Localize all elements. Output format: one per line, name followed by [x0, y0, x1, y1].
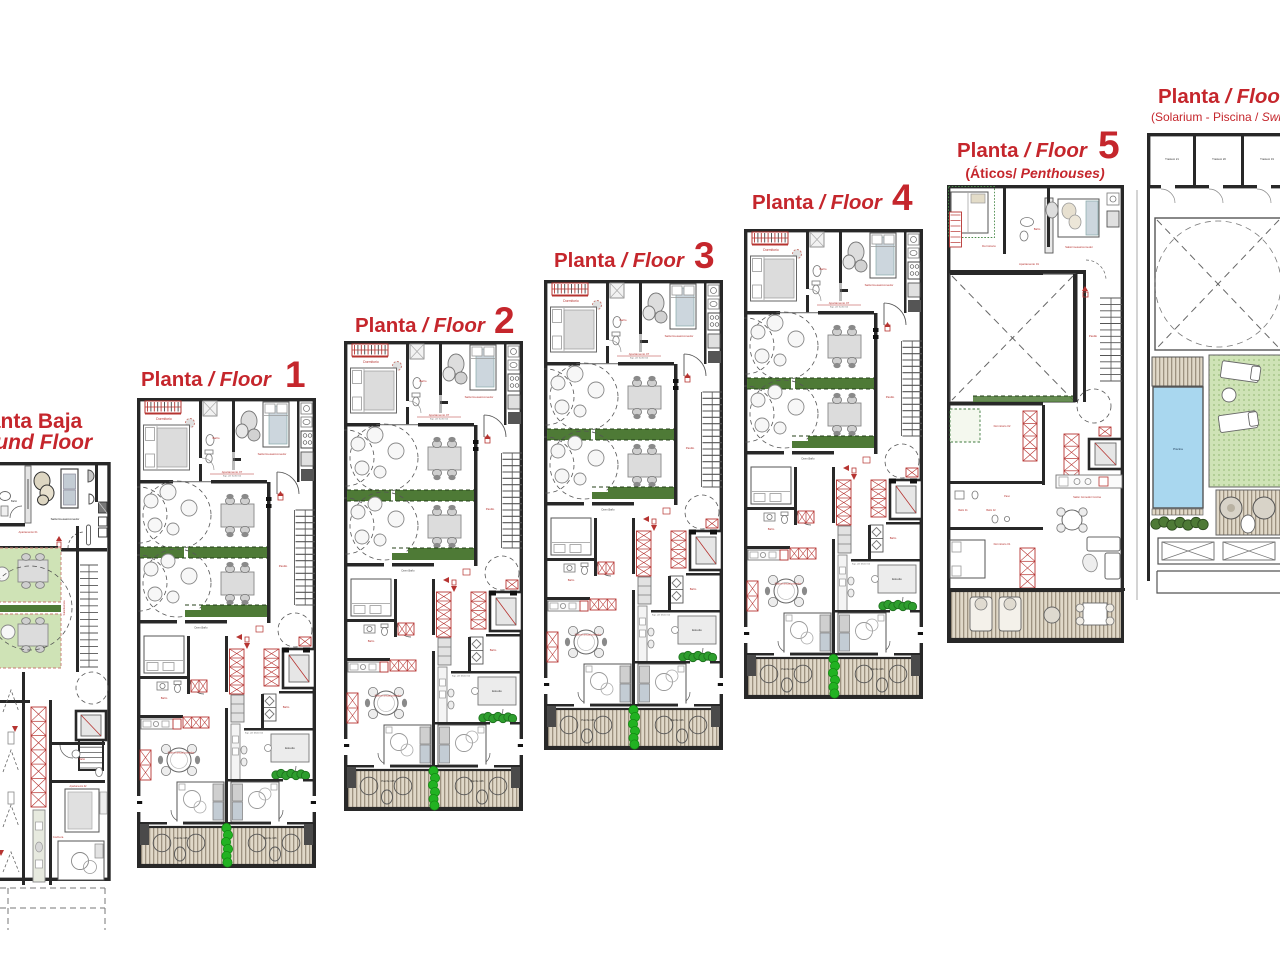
svg-text:4: 4 [892, 177, 913, 218]
svg-text:(Áticos/ Penthouses): (Áticos/ Penthouses) [965, 165, 1105, 181]
svg-text:Trastero 20: Trastero 20 [1212, 157, 1226, 161]
svg-text:Salón/mesas/comedor: Salón/mesas/comedor [51, 517, 80, 521]
svg-text:5: 5 [1098, 124, 1120, 167]
svg-text:Baño 02: Baño 02 [986, 509, 996, 512]
svg-text:Trastero 21: Trastero 21 [1165, 157, 1179, 161]
svg-text:Baño: Baño [79, 757, 86, 761]
svg-text:Dormitorio: Dormitorio [982, 244, 996, 248]
svg-text:Piscina: Piscina [1173, 447, 1183, 451]
svg-text:Planta / Floor: Planta / Floor [554, 249, 685, 272]
svg-text:Planta / Floor: Planta / Floor [355, 314, 486, 337]
svg-text:Salón/terraza: Salón/terraza [63, 600, 66, 615]
svg-text:Planta / Floor: Planta / Floor [957, 139, 1088, 162]
svg-text:Apartamento 01: Apartamento 01 [18, 530, 38, 534]
svg-text:1: 1 [285, 354, 306, 395]
svg-text:Planta / Floor: Planta / Floor [752, 191, 883, 214]
svg-text:Paso: Paso [1004, 495, 1010, 498]
svg-text:Pasillo: Pasillo [1089, 334, 1098, 338]
svg-text:Baño: Baño [1034, 227, 1041, 231]
svg-text:Salón/mesas/comedor: Salón/mesas/comedor [1065, 245, 1093, 249]
svg-text:Dormitorio 02: Dormitorio 02 [994, 424, 1011, 428]
svg-text:Ground Floor: Ground Floor [0, 431, 94, 454]
svg-text:Trastero 19: Trastero 19 [1260, 157, 1274, 161]
svg-text:Apartamento 02: Apartamento 02 [69, 785, 87, 788]
svg-text:3: 3 [694, 235, 715, 276]
svg-text:2: 2 [494, 300, 515, 341]
svg-text:Planta / Floor: Planta / Floor [1158, 85, 1280, 108]
svg-text:Baño: Baño [11, 499, 18, 503]
svg-text:Baño 01: Baño 01 [958, 509, 968, 512]
svg-text:Salón Comedor Cocina: Salón Comedor Cocina [1073, 495, 1101, 499]
svg-text:Planta Baja: Planta Baja [0, 410, 83, 433]
svg-text:Cochera: Cochera [53, 835, 64, 839]
svg-text:Apartamento 01: Apartamento 01 [1019, 262, 1039, 266]
svg-text:Dormitorio 01: Dormitorio 01 [994, 542, 1011, 546]
svg-text:(Solarium - Piscina / Swimming: (Solarium - Piscina / Swimming pool) [1151, 110, 1280, 124]
svg-text:Planta / Floor: Planta / Floor [141, 368, 272, 391]
